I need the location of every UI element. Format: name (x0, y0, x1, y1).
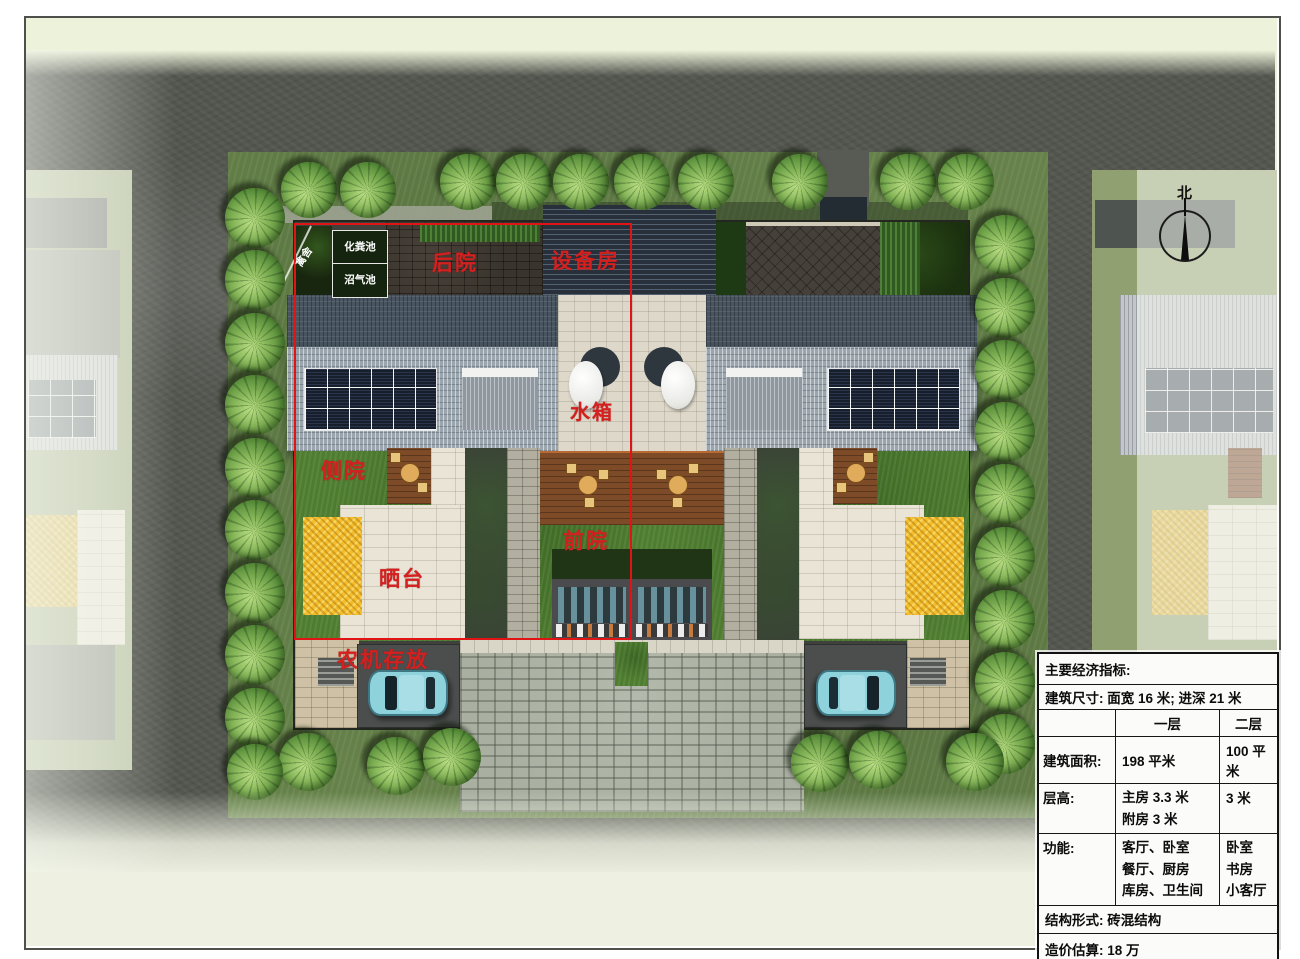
floor2-function-line: 书房 (1226, 859, 1271, 881)
tree (946, 733, 1004, 791)
tree (225, 250, 285, 310)
table-dimensions-row: 建筑尺寸: 面宽 16 米; 进深 21 米 (1039, 684, 1277, 709)
building-dimensions: 建筑尺寸: 面宽 16 米; 进深 21 米 (1045, 687, 1242, 707)
table-title-row: 主要经济指标: (1039, 654, 1277, 684)
label-equipment-room: 设备房 (551, 251, 620, 272)
structure-type: 结构形式: 砖混结构 (1045, 909, 1161, 929)
tree (225, 625, 285, 685)
header-floor1: 一层 (1115, 710, 1219, 736)
table-row-area: 建筑面积: 198 平米 100 平米 (1039, 736, 1277, 783)
tree (281, 162, 337, 218)
tree (225, 500, 285, 560)
floor1-function-line: 库房、卫生间 (1122, 880, 1213, 902)
floor2-functions: 卧室 书房 小客厅 (1219, 834, 1277, 905)
tree (279, 733, 337, 791)
floor1-heights: 主房 3.3 米 附房 3 米 (1115, 784, 1219, 833)
row-label: 层高: (1039, 784, 1115, 833)
table-header-row: 一层 二层 (1039, 709, 1277, 736)
tree (975, 278, 1035, 338)
tree (225, 375, 285, 435)
floor2-function-line: 卧室 (1226, 837, 1271, 859)
tree (772, 154, 828, 210)
row-label: 功能: (1039, 834, 1115, 905)
tree (225, 563, 285, 623)
tree (975, 527, 1035, 587)
tree (614, 154, 670, 210)
label-front-yard: 前院 (563, 531, 609, 552)
tree (553, 154, 609, 210)
table-cost-row: 造价估算: 18 万 (1039, 933, 1277, 959)
tree (975, 652, 1035, 712)
cost-estimate: 造价估算: 18 万 (1045, 939, 1140, 959)
tree (225, 688, 285, 748)
label-water-tank: 水箱 (570, 403, 614, 423)
table-row-height: 层高: 主房 3.3 米 附房 3 米 3 米 (1039, 783, 1277, 833)
tree (678, 154, 734, 210)
tree (423, 728, 481, 786)
tree (225, 313, 285, 373)
label-drying-terrace: 晒台 (379, 569, 425, 590)
economic-table: 主要经济指标: 建筑尺寸: 面宽 16 米; 进深 21 米 一层 二层 建筑面… (1037, 652, 1279, 959)
table-structure-row: 结构形式: 砖混结构 (1039, 905, 1277, 933)
label-back-yard: 后院 (432, 253, 478, 274)
north-indicator: 北 (1159, 186, 1211, 266)
tree (849, 731, 907, 789)
tree (440, 154, 496, 210)
tree (975, 402, 1035, 462)
floor1-height-annex: 附房 3 米 (1122, 809, 1213, 831)
floor1-function-line: 客厅、卧室 (1122, 837, 1213, 859)
site-plan-rendering: 化粪池 沼气池 (0, 0, 1300, 959)
floor2-height: 3 米 (1219, 784, 1277, 833)
tree (975, 464, 1035, 524)
floor2-area: 100 平米 (1219, 737, 1277, 783)
tree (225, 438, 285, 498)
tree (975, 215, 1035, 275)
tree (340, 162, 396, 218)
tree (496, 154, 552, 210)
north-needle (1181, 214, 1189, 260)
tree (938, 154, 994, 210)
label-side-yard: 侧院 (321, 461, 367, 482)
floor1-function-line: 餐厅、厨房 (1122, 859, 1213, 881)
tree (975, 590, 1035, 650)
header-blank-cell (1039, 710, 1115, 736)
header-floor2: 二层 (1219, 710, 1277, 736)
floor1-height-main: 主房 3.3 米 (1122, 787, 1213, 809)
floor1-functions: 客厅、卧室 餐厅、厨房 库房、卫生间 (1115, 834, 1219, 905)
tree (791, 734, 849, 792)
table-title: 主要经济指标: (1045, 659, 1131, 679)
left-haze (26, 50, 176, 872)
floor2-function-line: 小客厅 (1226, 880, 1271, 902)
tree (367, 737, 425, 795)
table-row-functions: 功能: 客厅、卧室 餐厅、厨房 库房、卫生间 卧室 书房 小客厅 (1039, 833, 1277, 905)
floor1-area: 198 平米 (1115, 737, 1219, 783)
tree (880, 154, 936, 210)
label-machinery-storage: 农机存放 (337, 650, 429, 671)
unit-highlight-box (294, 223, 632, 640)
tree (225, 188, 285, 248)
row-label: 建筑面积: (1039, 737, 1115, 783)
tree (975, 340, 1035, 400)
